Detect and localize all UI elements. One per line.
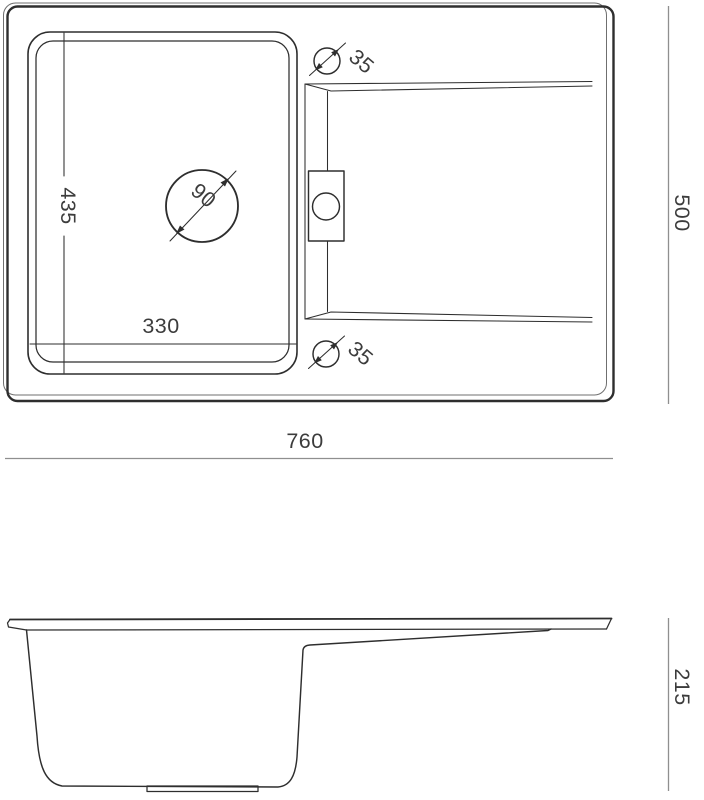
bowl-depth-label: 435 [56, 187, 80, 224]
drainboard-top-inner-edge [305, 84, 592, 91]
height-label: 215 [670, 668, 694, 705]
hole-bottom-diameter-icon [309, 336, 345, 369]
rim-left-lip [8, 620, 27, 631]
hole-bottom-diameter-label: 35 [343, 336, 378, 370]
overall-depth-label: 500 [670, 194, 694, 231]
bowl-width-label: 330 [142, 314, 179, 338]
drainboard-bottom-inner-edge [305, 312, 592, 319]
drainboard-top-outer-edge [305, 82, 592, 85]
hole-top-diameter-icon [310, 43, 346, 76]
rim-bottom-edge [27, 629, 607, 630]
rim-top-edge [10, 619, 612, 620]
faucet-hole-plate [309, 171, 345, 241]
sink-technical-drawing: 90 35 35 435 330 [0, 0, 704, 800]
bowl-profile [27, 629, 552, 787]
overall-width-label: 760 [286, 429, 323, 453]
drainboard-bottom-outer-edge [305, 319, 592, 322]
drainboard [305, 82, 592, 323]
rim-right-lip [607, 619, 612, 630]
top-view: 90 35 35 435 330 [4, 3, 614, 401]
sink-outline [8, 7, 614, 402]
side-view [8, 619, 612, 792]
drain-diameter-label: 90 [186, 178, 221, 212]
faucet-hole-circle [313, 193, 340, 220]
hole-top-diameter-label: 35 [344, 44, 379, 78]
dimension-annotations: 760 500 215 [5, 6, 694, 791]
